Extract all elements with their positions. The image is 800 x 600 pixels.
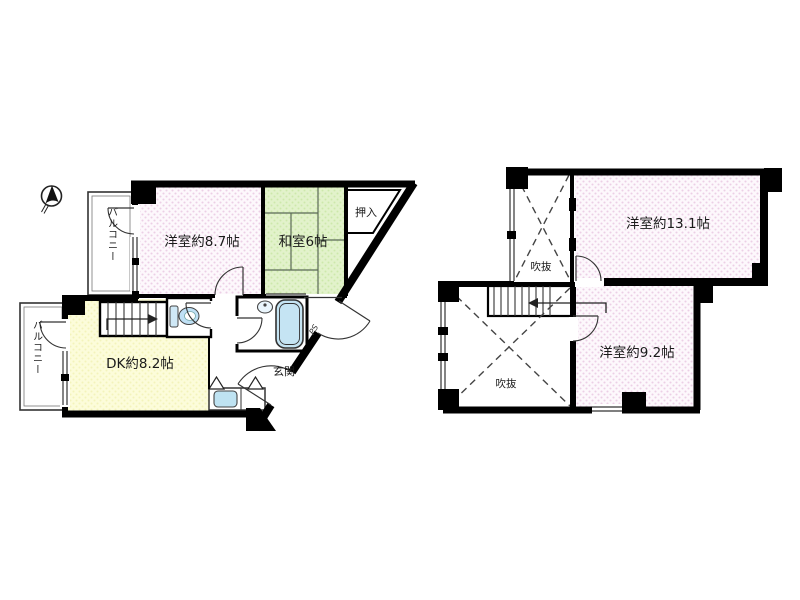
kitchen-sink	[214, 391, 237, 407]
label-western-8-7: 洋室約8.7帖	[164, 233, 239, 250]
floor1-plan: 洋室約8.7帖 和室6帖 押入 DK約8.2帖 玄関 PS バルコニー バルコニ…	[20, 181, 415, 431]
toilet-room	[167, 298, 214, 337]
floor-plan-canvas: 洋室約8.7帖 和室6帖 押入 DK約8.2帖 玄関 PS バルコニー バルコニ…	[0, 0, 800, 600]
label-japanese-6: 和室6帖	[278, 233, 327, 250]
label-dk: DK約8.2帖	[106, 356, 174, 372]
label-balcony-lower: バルコニー	[31, 320, 43, 375]
wash-basin	[258, 301, 273, 313]
balcony-lower	[20, 303, 66, 410]
label-closet: 押入	[355, 205, 377, 219]
label-balcony-upper: バルコニー	[106, 207, 118, 262]
label-western-9-2: 洋室約9.2帖	[599, 344, 674, 361]
floor-plan-svg: 洋室約8.7帖 和室6帖 押入 DK約8.2帖 玄関 PS バルコニー バルコニ…	[0, 0, 800, 600]
label-void-upper: 吹抜	[531, 260, 552, 273]
compass-icon	[42, 186, 62, 214]
bathroom	[235, 297, 308, 351]
label-entrance: 玄関	[273, 364, 295, 378]
stairs-1f	[100, 302, 167, 336]
label-void-lower: 吹抜	[496, 377, 517, 390]
toilet-tank	[170, 306, 178, 327]
label-western-13-1: 洋室約13.1帖	[626, 215, 710, 232]
floor2-plan: 洋室約13.1帖 洋室約9.2帖 吹抜 吹抜	[438, 167, 782, 414]
